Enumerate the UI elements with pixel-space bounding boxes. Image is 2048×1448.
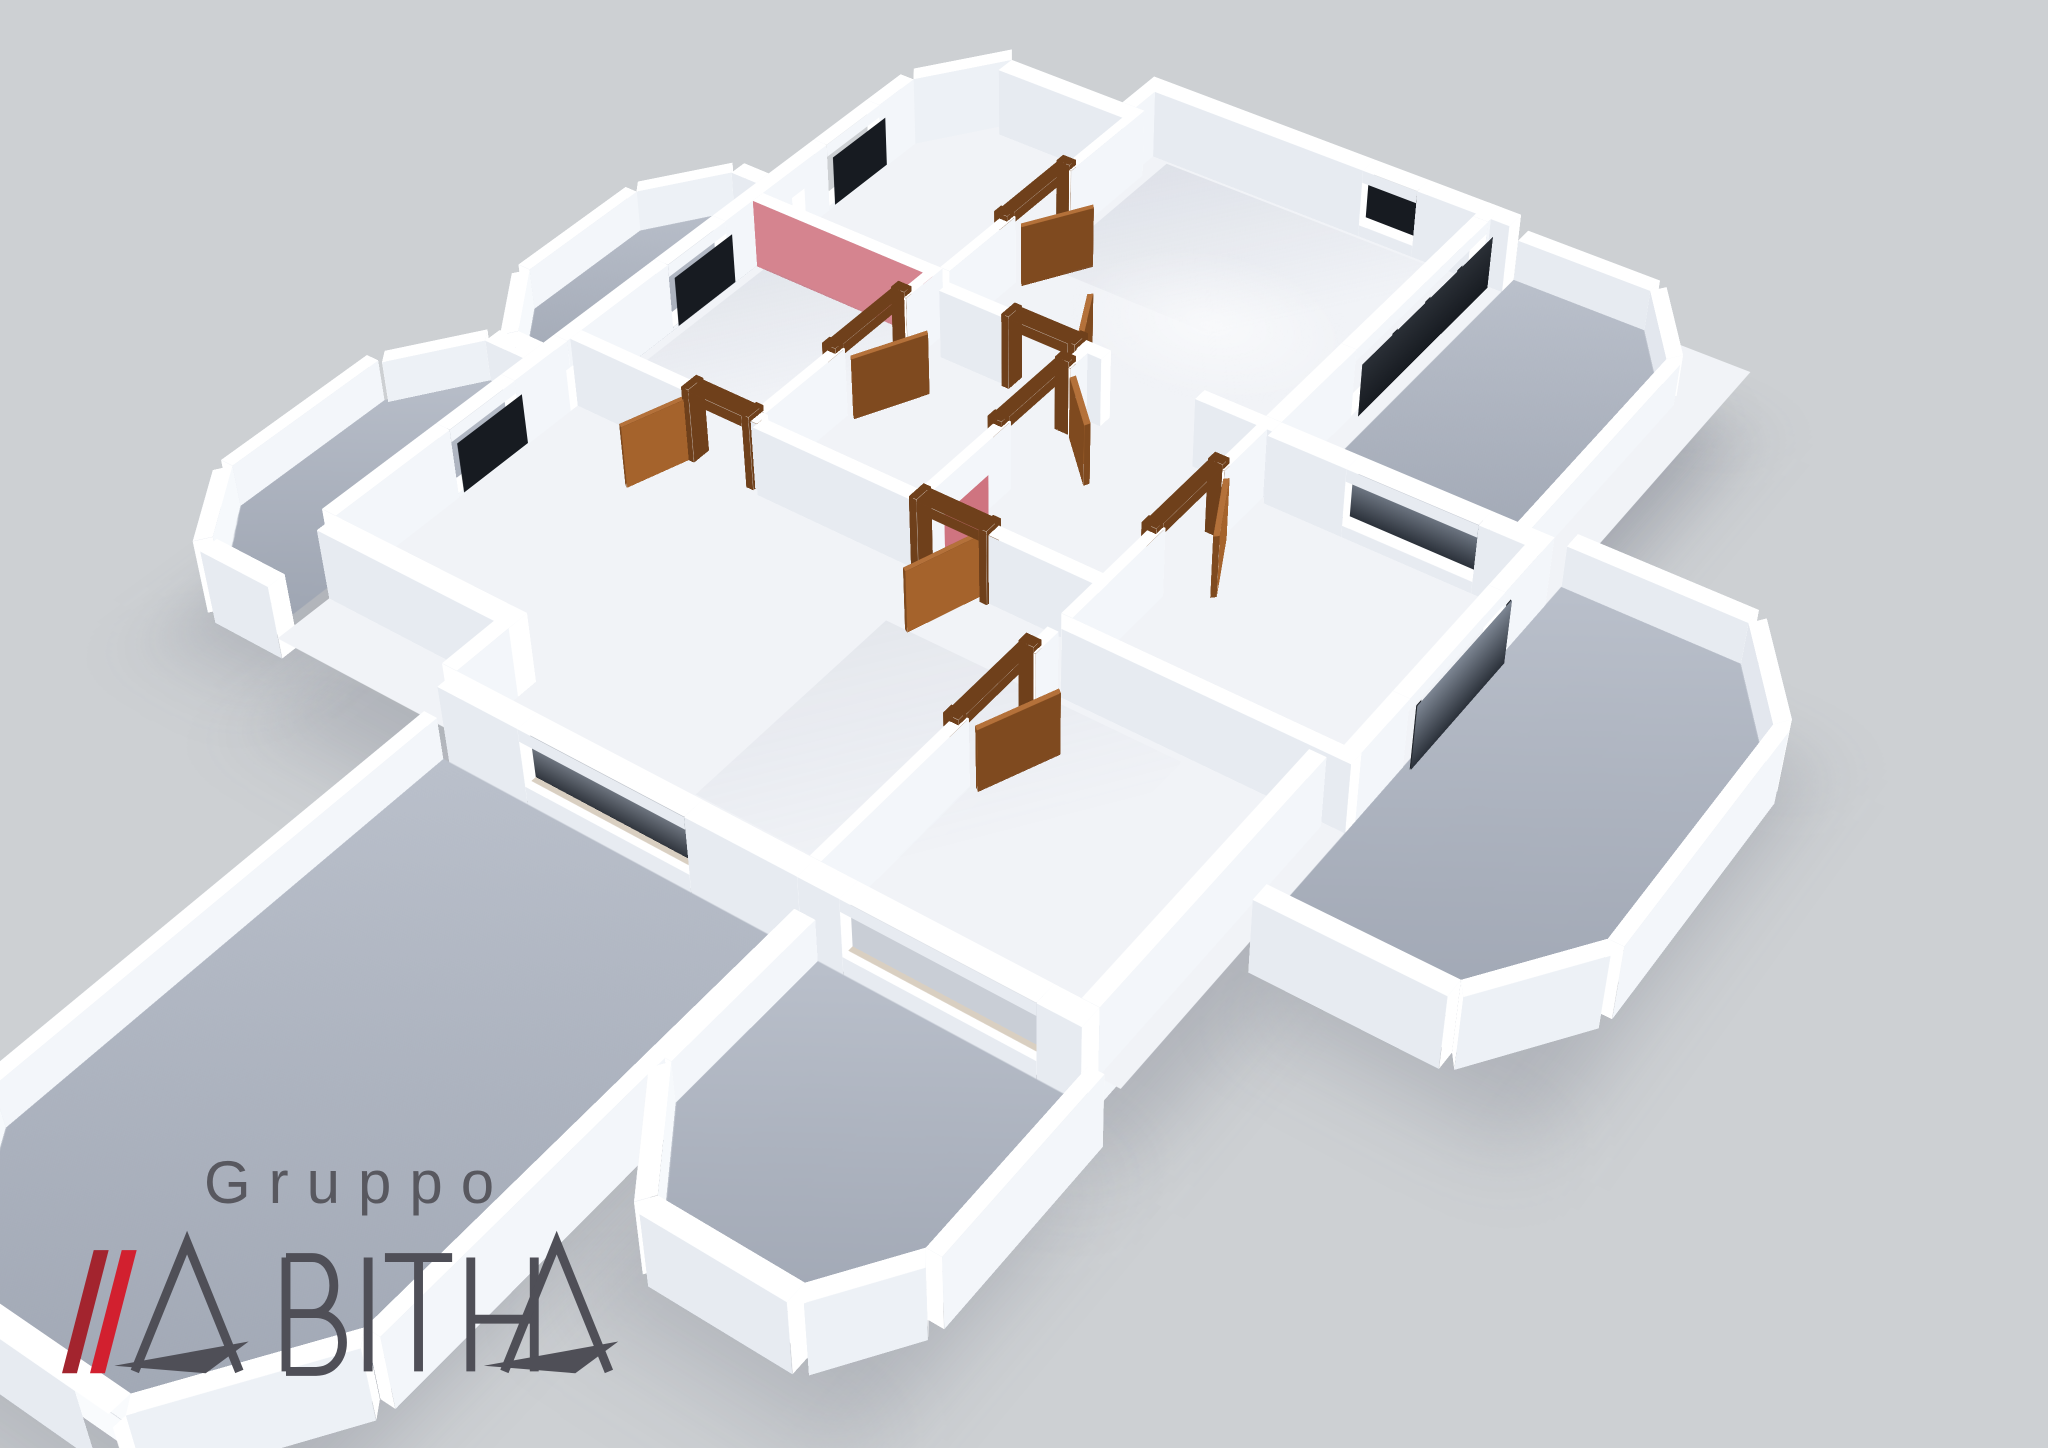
brand-logo: Gruppo [62, 1150, 702, 1448]
brand-gruppo-text: Gruppo [204, 1150, 512, 1216]
interior-wall-cap [1100, 351, 1111, 428]
poster-canvas: Gruppo [0, 0, 2048, 1448]
letter-t [385, 1258, 452, 1372]
door-leaf-cap [1083, 423, 1090, 486]
letter-b [286, 1258, 342, 1372]
brand-abitha-wordmark [62, 1232, 622, 1382]
